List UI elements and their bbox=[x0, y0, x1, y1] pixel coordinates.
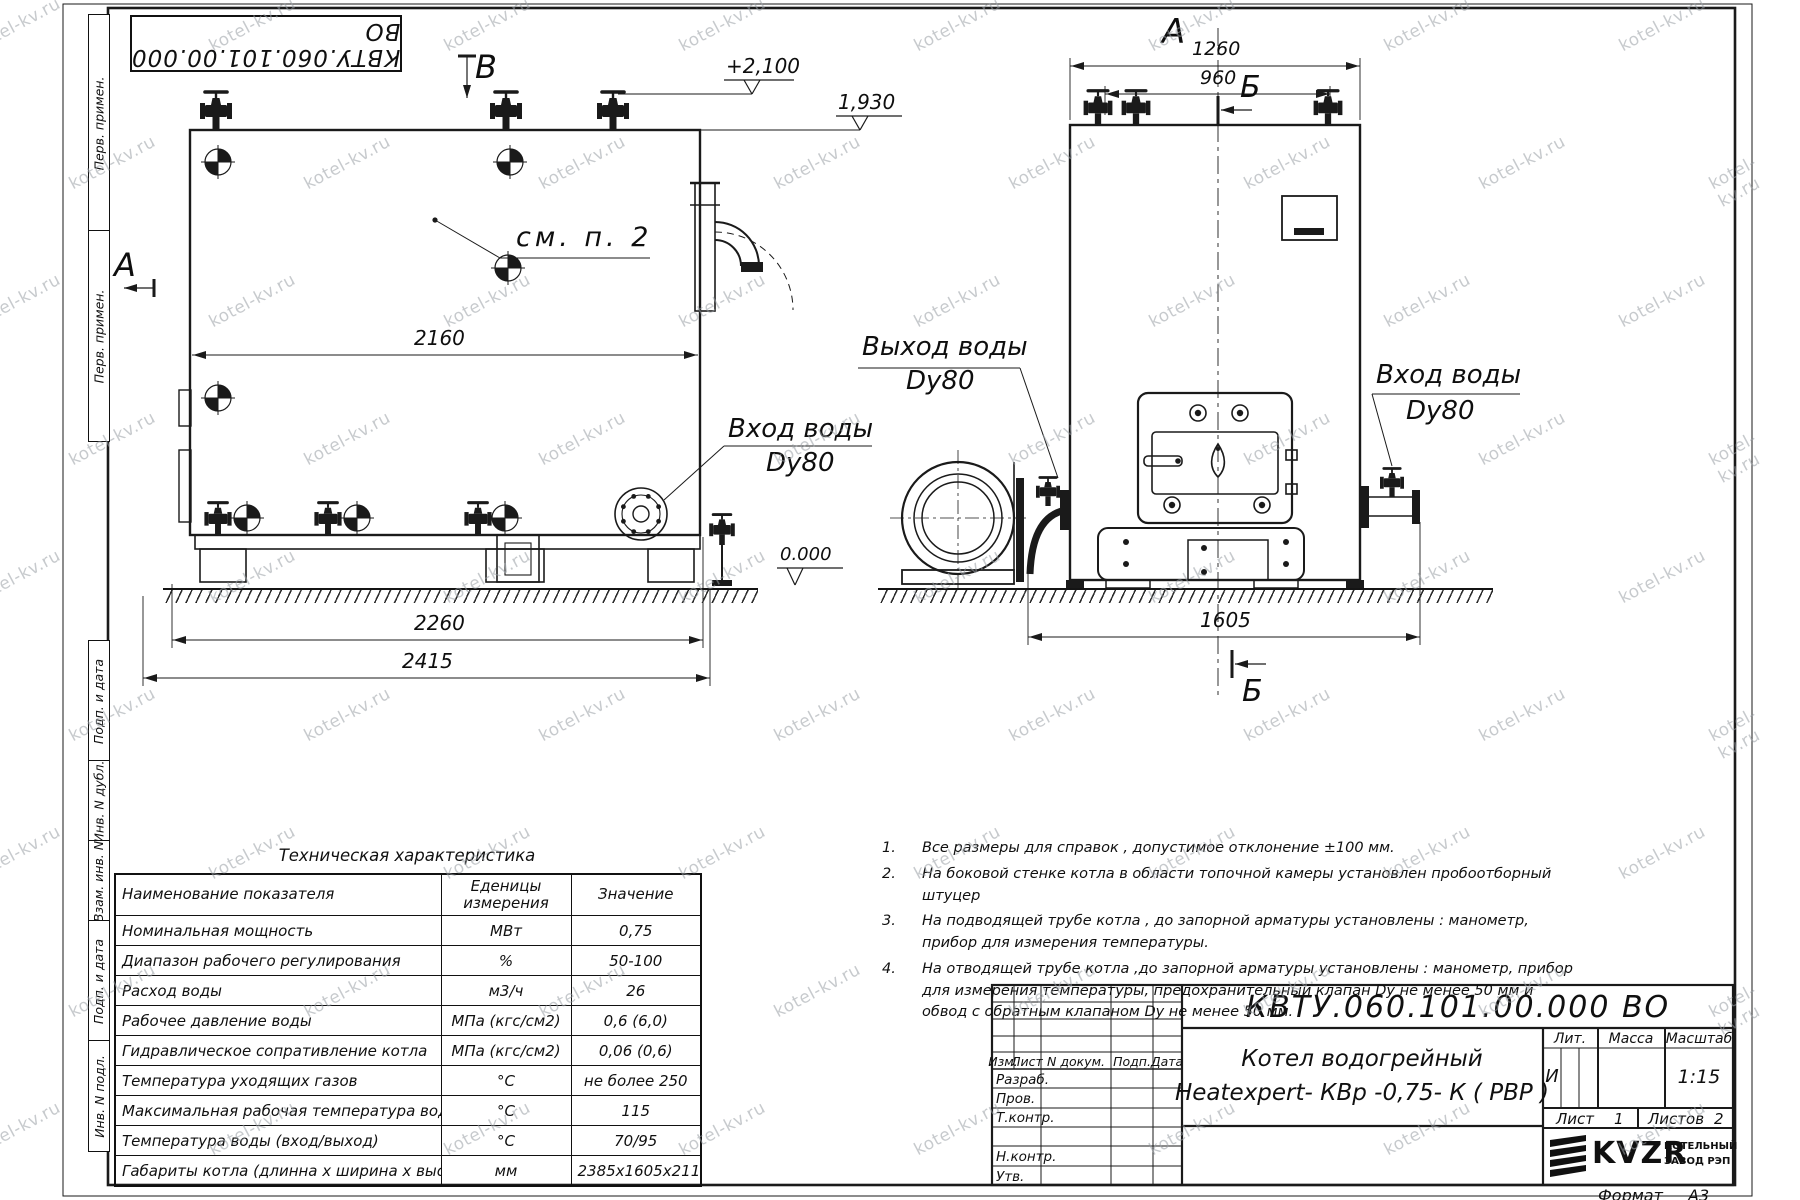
margin-cell: Инв. N подл. bbox=[88, 1040, 110, 1152]
param-name: Температура уходящих газов bbox=[115, 1066, 441, 1096]
tech-table-title: Техническая характеристика bbox=[114, 846, 700, 865]
valve-symbol bbox=[709, 515, 735, 545]
param-units: % bbox=[441, 946, 571, 976]
staff-row-tkontr: Т.контр. bbox=[996, 1110, 1055, 1126]
note-item: 1.Все размеры для справок , допустимое о… bbox=[882, 838, 1582, 860]
param-units: МПа (кгс/см2) bbox=[441, 1036, 571, 1066]
center-mark bbox=[488, 501, 522, 535]
margin-label: Инв. N дубл. bbox=[92, 760, 107, 842]
company-name-line1: КОТЕЛЬНЫЙ bbox=[1664, 1140, 1737, 1153]
param-value: 115 bbox=[571, 1096, 701, 1126]
tech-table: Наименование показателя Еденицы измерени… bbox=[114, 873, 702, 1187]
ground-hatch-left bbox=[163, 588, 758, 603]
table-row: Расход водым3/ч26 bbox=[115, 976, 701, 1006]
format-value: А3 bbox=[1688, 1186, 1709, 1200]
valve-symbol bbox=[490, 92, 522, 130]
staff-row-utv: Утв. bbox=[996, 1169, 1024, 1185]
dim-2260: 2260 bbox=[414, 611, 465, 635]
product-name-line1: Котел водогрейный bbox=[1241, 1046, 1483, 1072]
param-units: МВт bbox=[441, 916, 571, 946]
staff-row-razrab: Разраб. bbox=[996, 1072, 1049, 1088]
margin-label: Инв. N подл. bbox=[92, 1055, 107, 1138]
tech-characteristics: Техническая характеристика Наименование … bbox=[114, 846, 700, 1187]
tech-col-value: Значение bbox=[571, 874, 701, 916]
note-text: Все размеры для справок , допустимое отк… bbox=[922, 838, 1582, 860]
center-mark bbox=[340, 501, 374, 535]
param-units: °С bbox=[441, 1096, 571, 1126]
param-value: не более 250 bbox=[571, 1066, 701, 1096]
table-row: Габариты котла (длинна х ширина х высота… bbox=[115, 1156, 701, 1187]
margin-label: Подп. и дата bbox=[92, 938, 107, 1023]
inlet-right-label-line1: Вход воды bbox=[1376, 360, 1521, 390]
table-row: Температура уходящих газов°Сне более 250 bbox=[115, 1066, 701, 1096]
note-item: 2.На боковой стенке котла в области топо… bbox=[882, 864, 1582, 908]
margin-cell: Перв. примен. bbox=[88, 230, 110, 442]
section-label-v: В bbox=[475, 48, 497, 86]
table-row: Номинальная мощностьМВт0,75 bbox=[115, 916, 701, 946]
table-row: Максимальная рабочая температура воды°С1… bbox=[115, 1096, 701, 1126]
param-units: м3/ч bbox=[441, 976, 571, 1006]
doc-number: КВТУ.060.101.00.000 ВО bbox=[1246, 990, 1670, 1025]
outlet-label-line2: Dy80 bbox=[906, 366, 975, 396]
table-row: Диапазон рабочего регулирования%50-100 bbox=[115, 946, 701, 976]
note-number: 1. bbox=[882, 838, 922, 860]
param-name: Гидравлическое сопративление котла bbox=[115, 1036, 441, 1066]
margin-label: Взам. инв. N bbox=[92, 840, 107, 921]
lit-value: И bbox=[1545, 1066, 1558, 1087]
valve-symbol bbox=[464, 503, 491, 535]
note-number: 4. bbox=[882, 959, 922, 1024]
margin-label: Перв. примен. bbox=[92, 76, 107, 170]
valve-symbol bbox=[1380, 469, 1404, 498]
top-stamp: КВТУ.060.101.00.000 ВО bbox=[130, 15, 402, 72]
valve-symbol bbox=[314, 503, 341, 535]
tech-col-units: Еденицы измерения bbox=[441, 874, 571, 916]
center-mark bbox=[201, 381, 235, 415]
tech-col-name: Наименование показателя bbox=[115, 874, 441, 916]
grid-header-ndokum: N докум. bbox=[1047, 1054, 1105, 1069]
product-name-line2: Heatexpert- КВр -0,75- К ( РВР ) bbox=[1175, 1080, 1549, 1106]
dim-1605: 1605 bbox=[1200, 608, 1251, 632]
margin-label: Подп. и дата bbox=[92, 658, 107, 743]
param-value: 0,06 (0,6) bbox=[571, 1036, 701, 1066]
note-number: 3. bbox=[882, 911, 922, 955]
table-row: Температура воды (вход/выход)°С70/95 bbox=[115, 1126, 701, 1156]
section-label-b-bottom: Б bbox=[1242, 674, 1263, 709]
sheets-label: Листов bbox=[1648, 1110, 1704, 1128]
valve-symbol bbox=[1122, 91, 1151, 125]
param-value: 70/95 bbox=[571, 1126, 701, 1156]
table-row: Рабочее давление водыМПа (кгс/см2)0,6 (6… bbox=[115, 1006, 701, 1036]
dim-960: 960 bbox=[1200, 67, 1236, 89]
company-name-line2: ЗАВОД РЭП bbox=[1664, 1155, 1730, 1168]
param-name: Габариты котла (длинна х ширина х высота… bbox=[115, 1156, 441, 1187]
format-label: Формат bbox=[1598, 1186, 1663, 1200]
param-value: 2385х1605х2117 bbox=[571, 1156, 701, 1187]
top-stamp-text: КВТУ.060.101.00.000 ВО bbox=[131, 18, 400, 70]
furnace-door bbox=[1138, 393, 1297, 523]
mass-label: Масса bbox=[1609, 1031, 1654, 1047]
view-label-a: А bbox=[1162, 12, 1185, 52]
param-units: МПа (кгс/см2) bbox=[441, 1006, 571, 1036]
drawing-sheet: Перв. примен. Перв. примен. Подп. и дата… bbox=[0, 0, 1800, 1200]
margin-label: Перв. примен. bbox=[92, 289, 107, 383]
table-row: Гидравлическое сопративление котлаМПа (к… bbox=[115, 1036, 701, 1066]
dim-2415: 2415 bbox=[402, 649, 453, 673]
lit-label: Лит. bbox=[1554, 1031, 1586, 1047]
grid-header-data: Дата bbox=[1151, 1054, 1183, 1069]
param-value: 0,75 bbox=[571, 916, 701, 946]
margin-cell: Инв. N дубл. bbox=[88, 760, 110, 842]
blower-fan bbox=[890, 450, 1026, 592]
margin-cell: Подп. и дата bbox=[88, 640, 110, 762]
elevation-zero: 0.000 bbox=[780, 544, 832, 565]
kvzr-logo-icon bbox=[1550, 1135, 1586, 1177]
grid-header-podp: Подп. bbox=[1113, 1054, 1151, 1069]
param-units: мм bbox=[441, 1156, 571, 1187]
dim-1260: 1260 bbox=[1192, 38, 1240, 60]
inlet-label-line2: Dy80 bbox=[766, 448, 835, 478]
note-number: 2. bbox=[882, 864, 922, 908]
param-name: Температура воды (вход/выход) bbox=[115, 1126, 441, 1156]
section-label-b-top: Б bbox=[1240, 70, 1261, 105]
param-name: Расход воды bbox=[115, 976, 441, 1006]
center-mark bbox=[230, 501, 264, 535]
scale-value: 1:15 bbox=[1678, 1066, 1721, 1088]
elevation-high: +2,100 bbox=[726, 54, 800, 78]
staff-row-prov: Пров. bbox=[996, 1091, 1035, 1107]
note-text: На подводящей трубе котла , до запорной … bbox=[922, 911, 1582, 955]
inlet-flange-symbol bbox=[615, 488, 667, 540]
param-name: Диапазон рабочего регулирования bbox=[115, 946, 441, 976]
valve-symbol bbox=[200, 92, 232, 130]
sheet-value: 1 bbox=[1614, 1110, 1624, 1128]
param-name: Рабочее давление воды bbox=[115, 1006, 441, 1036]
param-value: 26 bbox=[571, 976, 701, 1006]
valve-symbol bbox=[204, 503, 231, 535]
param-value: 50-100 bbox=[571, 946, 701, 976]
valve-symbol bbox=[597, 92, 629, 130]
margin-cell: Подп. и дата bbox=[88, 920, 110, 1042]
inlet-label-line1: Вход воды bbox=[728, 414, 873, 444]
outlet-label-line1: Выход воды bbox=[862, 332, 1028, 362]
ground-hatch-right bbox=[878, 588, 1493, 603]
staff-row-nkontr: Н.контр. bbox=[996, 1149, 1056, 1165]
param-name: Номинальная мощность bbox=[115, 916, 441, 946]
dim-2160: 2160 bbox=[414, 326, 465, 350]
param-units: °С bbox=[441, 1126, 571, 1156]
center-mark bbox=[201, 145, 235, 179]
section-label-a-left: А bbox=[114, 246, 136, 284]
scale-label: Масштаб bbox=[1666, 1031, 1733, 1047]
param-value: 0,6 (6,0) bbox=[571, 1006, 701, 1036]
valve-symbol bbox=[1084, 91, 1113, 125]
param-name: Максимальная рабочая температура воды bbox=[115, 1096, 441, 1126]
grid-header-list: Лист bbox=[1011, 1054, 1043, 1069]
elevation-mid: 1,930 bbox=[838, 90, 895, 114]
margin-cell: Перв. примен. bbox=[88, 14, 110, 232]
center-mark bbox=[493, 145, 527, 179]
note-item: 3.На подводящей трубе котла , до запорно… bbox=[882, 911, 1582, 955]
valve-symbol bbox=[1036, 478, 1060, 507]
param-units: °С bbox=[441, 1066, 571, 1096]
inlet-right-label-line2: Dy80 bbox=[1406, 396, 1475, 426]
margin-cell: Взам. инв. N bbox=[88, 840, 110, 922]
sheets-value: 2 bbox=[1714, 1110, 1724, 1128]
sheet-label: Лист bbox=[1556, 1110, 1594, 1128]
note-text: На боковой стенке котла в области топочн… bbox=[922, 864, 1582, 908]
see-note-ref: см. п. 2 bbox=[516, 222, 652, 253]
